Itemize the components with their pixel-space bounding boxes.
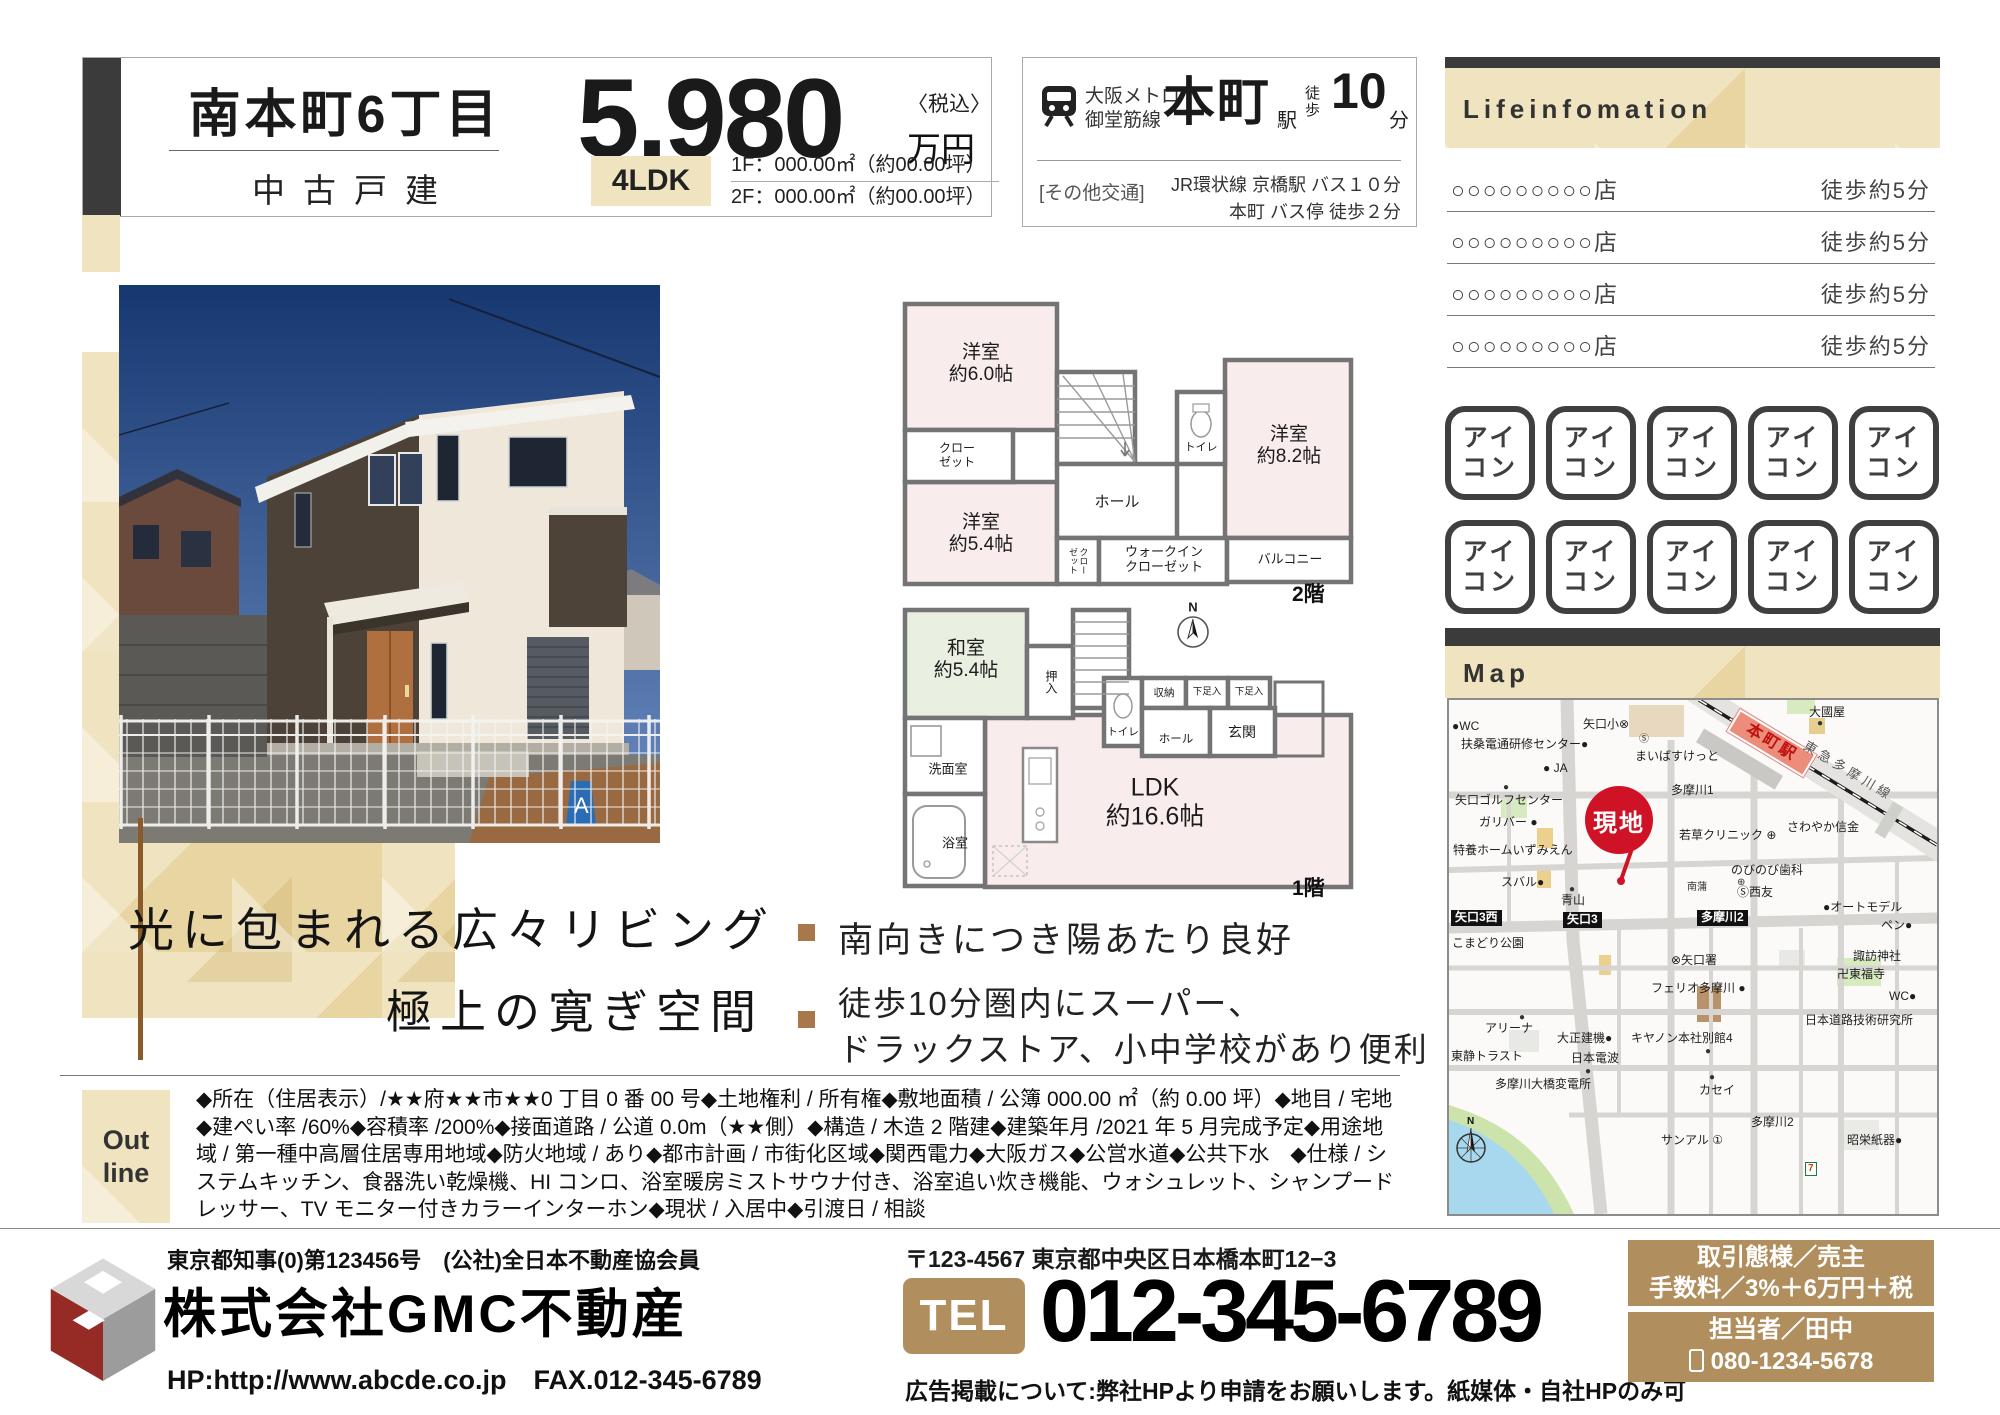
other-access-1: JR環状線 京橋駅 バス１０分 (1141, 172, 1401, 199)
map-poi-label: 本町駅 (1727, 709, 1817, 777)
map-poi-label: 矢口小⊗ (1583, 718, 1629, 732)
store-name: ○○○○○○○○○店 (1451, 171, 1619, 205)
lifeinfo-row: ○○○○○○○○○店 徒歩約5分 (1447, 160, 1935, 212)
map-poi-label: 卍東福寺 (1837, 968, 1885, 982)
map-poi-label: 大國屋 (1809, 706, 1845, 720)
map-poi-label: 大正建機● (1557, 1032, 1612, 1046)
catch-copy-line1: 光に包まれる広々リビング (128, 894, 776, 960)
lifeinfo-dark-bar (1445, 57, 1940, 68)
map-poi-label: スバル● (1501, 876, 1544, 890)
map-poi-label: さわやか信金 (1787, 821, 1859, 835)
site-marker: 現地 (1585, 786, 1653, 854)
catch-copy-line2: 極上の寛ぎ空間 (386, 976, 764, 1042)
other-access-2: 本町 バス停 徒歩２分 (1141, 199, 1401, 226)
company-hp-fax: HP:http://www.abcde.co.jp FAX.012-345-67… (167, 1358, 762, 1397)
map-poi-label: 多摩川大橋変電所 (1495, 1078, 1591, 1092)
room-label-yoshitsu54: 洋室 約5.4帖 (949, 512, 1013, 556)
feature-item: 南向きにつき陽あたり良好 (798, 912, 1438, 963)
location-map: N ●WC扶桑電通研修センター●矢口小⊗Ⓢまいばすけっと● JA多摩川1矢口ゴル… (1447, 698, 1939, 1216)
room-label-closet2: クローゼット (1068, 548, 1089, 575)
map-poi-label: ● (1709, 1072, 1715, 1084)
map-poi-label: アリーナ (1485, 1022, 1533, 1036)
room-label-geta2: 下足入 (1235, 688, 1264, 699)
map-poi-label: 若草クリニック ⊕ (1679, 829, 1776, 843)
room-label-senmen: 洗面室 (928, 763, 967, 778)
tel-badge: TEL (903, 1278, 1025, 1354)
map-poi-label: 東静トラスト (1451, 1050, 1523, 1064)
map-poi-label: 諏訪神社 (1853, 950, 1901, 964)
lifeinfo-row: ○○○○○○○○○店 徒歩約5分 (1447, 212, 1935, 264)
map-poi-label: 南蒲 (1687, 882, 1707, 894)
amenity-icon: アイ コン (1647, 520, 1737, 614)
map-poi-label: ガリバー ● (1479, 816, 1538, 830)
lifeinfo-row: ○○○○○○○○○店 徒歩約5分 (1447, 264, 1935, 316)
map-poi-label: まいばすけっと (1635, 750, 1719, 764)
north-label: N (1188, 601, 1197, 616)
room-label-toilet: トイレ (1185, 442, 1218, 455)
amenity-icon: アイ コン (1647, 406, 1737, 500)
map-poi-label: ● JA (1543, 762, 1568, 776)
room-label-closet: クロー ゼット (939, 442, 975, 470)
floorplan-1f: 和室 約5.4帖 押入 トイレ 収納 下足入 下足入 ホール 玄関 洗面室 浴室… (893, 598, 1363, 900)
bullet-square-icon (798, 924, 815, 941)
access-divider (1037, 160, 1401, 161)
room-label-wic: ウォークイン クローゼット (1125, 545, 1203, 575)
map-poi-label: 多摩川1 (1671, 784, 1714, 798)
property-type: 中古戸建 (125, 164, 565, 212)
map-dark-bar (1445, 628, 1940, 646)
map-poi-label: ⊗矢口署 (1671, 954, 1717, 968)
station-suffix: 駅 (1277, 104, 1297, 133)
property-header: 南本町6丁目 中古戸建 5,980 〈税込〉 万円 4LDK 1F：000.00… (82, 57, 992, 217)
commission: 手数料／3%＋6万円＋税 (1628, 1273, 1934, 1304)
map-poi-label: のびのび歯科 (1731, 864, 1803, 878)
ad-note: 広告掲載について:弊社HPより申請をお願いします。紙媒体・自社HPのみ可 (905, 1372, 1686, 1406)
map-poi-label: Ⓢ (1639, 734, 1649, 746)
map-poi-label: ● (1503, 782, 1509, 794)
map-poi-label: ●オートモデル (1823, 901, 1902, 915)
room-label-genkan: 玄関 (1228, 724, 1256, 740)
store-name: ○○○○○○○○○店 (1451, 275, 1619, 309)
svg-text:A: A (574, 793, 589, 818)
room-label-bath: 浴室 (942, 837, 968, 852)
license-text: 東京都知事(0)第123456号 (公社)全日本不動産協会員 (167, 1243, 700, 1275)
floorplan-2f: 洋室 約6.0帖 クロー ゼット 洋室 約5.4帖 ホール トイレ 洋室 約8.… (893, 296, 1363, 588)
map-poi-label: 東急多摩川線 (1800, 739, 1895, 804)
map-poi-label: 矢口3 (1563, 912, 1602, 928)
map-poi-label: WC● (1889, 990, 1916, 1004)
company-logo (46, 1250, 160, 1400)
map-poi-label: ● (1817, 718, 1823, 730)
map-poi-label: 矢口3西 (1451, 910, 1502, 926)
amenity-icon: アイ コン (1849, 406, 1939, 500)
property-title: 南本町6丁目 (125, 72, 565, 147)
other-access-label: [その他交通] (1039, 178, 1145, 205)
amenity-icon: アイ コン (1445, 406, 1535, 500)
compass-icon (1178, 617, 1208, 647)
room-label-washitsu: 和室 約5.4帖 (934, 638, 998, 682)
footer-divider (0, 1228, 2000, 1229)
outline-top-rule (60, 1075, 1400, 1076)
room-label-yoshitsu82: 洋室 約8.2帖 (1257, 424, 1321, 468)
walk-minutes: 10 (1331, 62, 1387, 120)
amenity-icon: アイ コン (1849, 520, 1939, 614)
room-label-hall: ホール (1094, 493, 1139, 510)
station-name: 本町 (1163, 60, 1271, 135)
lifeinfo-row: ○○○○○○○○○店 徒歩約5分 (1447, 316, 1935, 368)
map-poi-label: Ⓢ西友 (1737, 886, 1773, 900)
room-label-yoshitsu6: 洋室 約6.0帖 (949, 342, 1013, 386)
map-poi-label: 矢口ゴルフセンター (1455, 794, 1563, 808)
feature-text: 徒歩10分圏内にスーパー、 ドラックストア、小中学校があり便利 (838, 981, 1438, 1073)
room-label-shuunou: 収納 (1154, 687, 1175, 699)
lifeinfo-rows: ○○○○○○○○○店 徒歩約5分 ○○○○○○○○○店 徒歩約5分 ○○○○○○… (1447, 160, 1935, 368)
map-poi-label: 多摩川2 (1697, 910, 1748, 926)
amenity-icon: アイ コン (1546, 520, 1636, 614)
amenity-icon-grid: アイ コンアイ コンアイ コンアイ コンアイ コンアイ コンアイ コンアイ コン… (1445, 406, 1943, 616)
agent-phone: 080-1234-5678 (1711, 1348, 1874, 1375)
floor2-area: 2F：000.00㎡（約00.00坪） (731, 182, 999, 213)
room-label-oshiire: 押入 (1043, 670, 1057, 694)
company-name: 株式会社GMC不動産 (163, 1272, 688, 1348)
map-poi-label: 扶桑電通研修センター● (1461, 738, 1588, 752)
map-poi-label: ● (1705, 1046, 1711, 1058)
walk-time: 徒歩約5分 (1821, 173, 1931, 205)
map-poi-label: 特養ホームいずみえん (1453, 844, 1573, 858)
amenity-icon: アイ コン (1445, 520, 1535, 614)
amenity-icon: アイ コン (1748, 520, 1838, 614)
price-tax-label: 〈税込〉 (907, 88, 1017, 118)
store-name: ○○○○○○○○○店 (1451, 327, 1619, 361)
map-poi-label: ● (1519, 1012, 1525, 1024)
map-poi-label: ●WC (1452, 720, 1479, 734)
walk-time: 徒歩約5分 (1821, 277, 1931, 309)
feature-item: 徒歩10分圏内にスーパー、 ドラックストア、小中学校があり便利 (798, 981, 1438, 1073)
bullet-square-icon (798, 1011, 815, 1028)
room-label-balcony: バルコニー (1258, 553, 1323, 568)
deal-type: 取引態様／売主 (1628, 1242, 1934, 1273)
map-poi-label: 青山 (1561, 894, 1585, 908)
train-icon (1039, 84, 1079, 128)
walk-label: 徒 歩 (1305, 85, 1320, 119)
map-poi-label: フェリオ多摩川 ● (1651, 982, 1746, 996)
map-poi-label: キヤノン本社別館4 (1631, 1032, 1733, 1046)
map-labels: ●WC扶桑電通研修センター●矢口小⊗Ⓢまいばすけっと● JA多摩川1矢口ゴルフセ… (1449, 700, 1937, 1214)
room-label-geta1: 下足入 (1193, 688, 1222, 699)
room-label-hall-1f: ホール (1159, 733, 1194, 746)
map-poi-label: サンアル ① (1661, 1134, 1723, 1148)
map-poi-label: 昭栄紙器● (1847, 1134, 1902, 1148)
amenity-icon: アイ コン (1748, 406, 1838, 500)
map-poi-label: ● (1585, 1066, 1591, 1078)
map-poi-label: 日本道路技術研究所 (1805, 1014, 1913, 1028)
floor-areas: 1F：000.00㎡（約00.00坪） 2F：000.00㎡（約00.00坪） (731, 150, 999, 213)
amenity-icon: アイ コン (1546, 406, 1636, 500)
flyer-page: 南本町6丁目 中古戸建 5,980 〈税込〉 万円 4LDK 1F：000.00… (0, 0, 2000, 1415)
room-label-toilet-1f: トイレ (1107, 726, 1139, 738)
lifeinfo-header: Lifeinfomation (1445, 57, 1940, 148)
map-heading: Map (1463, 658, 1530, 689)
store-name: ○○○○○○○○○店 (1451, 223, 1619, 257)
map-poi-label: 多摩川2 (1751, 1116, 1794, 1130)
floor1-area: 1F：000.00㎡（約00.00坪） (731, 150, 999, 182)
outline-text: ◆所在（住居表示）/★★府★★市★★0 丁目 0 番 00 号◆土地権利 / 所… (196, 1086, 1400, 1224)
outline-label: Out line (82, 1090, 170, 1223)
header-accent-bar (83, 58, 121, 216)
mobile-phone-icon (1689, 1349, 1704, 1372)
floor-label-1f: 1階 (1292, 872, 1325, 902)
deco-beige-square (82, 215, 120, 272)
feature-text: 南向きにつき陽あたり良好 (838, 921, 1294, 960)
room-label-ldk: LDK 約16.6帖 (1106, 773, 1205, 831)
agent-box: 担当者／田中 080-1234-5678 (1628, 1312, 1934, 1382)
map-poi-label: 日本電波 (1571, 1052, 1619, 1066)
walk-time: 徒歩約5分 (1821, 225, 1931, 257)
feature-list: 南向きにつき陽あたり良好 徒歩10分圏内にスーパー、 ドラックストア、小中学校が… (798, 912, 1438, 1073)
deal-type-box: 取引態様／売主 手数料／3%＋6万円＋税 (1628, 1240, 1934, 1306)
map-header: Map (1445, 628, 1940, 698)
phone-number: 012-345-6789 (1040, 1260, 1540, 1361)
map-poi-label: ペン● (1881, 919, 1912, 933)
map-poi-label: こまどり公園 (1452, 937, 1524, 951)
exterior-photo: A (119, 285, 660, 843)
title-divider (169, 150, 499, 151)
other-access-lines: JR環状線 京橋駅 バス１０分 本町 バス停 徒歩２分 (1141, 172, 1401, 226)
map-poi-label: 7 (1805, 1162, 1817, 1176)
agent-name: 担当者／田中 (1628, 1314, 1934, 1346)
lifeinfo-heading: Lifeinfomation (1463, 94, 1712, 125)
walk-unit: 分 (1389, 104, 1409, 133)
access-box: 大阪メトロ 御堂筋線 本町 駅 徒 歩 10 分 [その他交通] JR環状線 京… (1022, 57, 1417, 227)
layout-badge: 4LDK (591, 156, 711, 206)
walk-time: 徒歩約5分 (1821, 329, 1931, 361)
map-poi-label: カセイ (1699, 1084, 1735, 1098)
